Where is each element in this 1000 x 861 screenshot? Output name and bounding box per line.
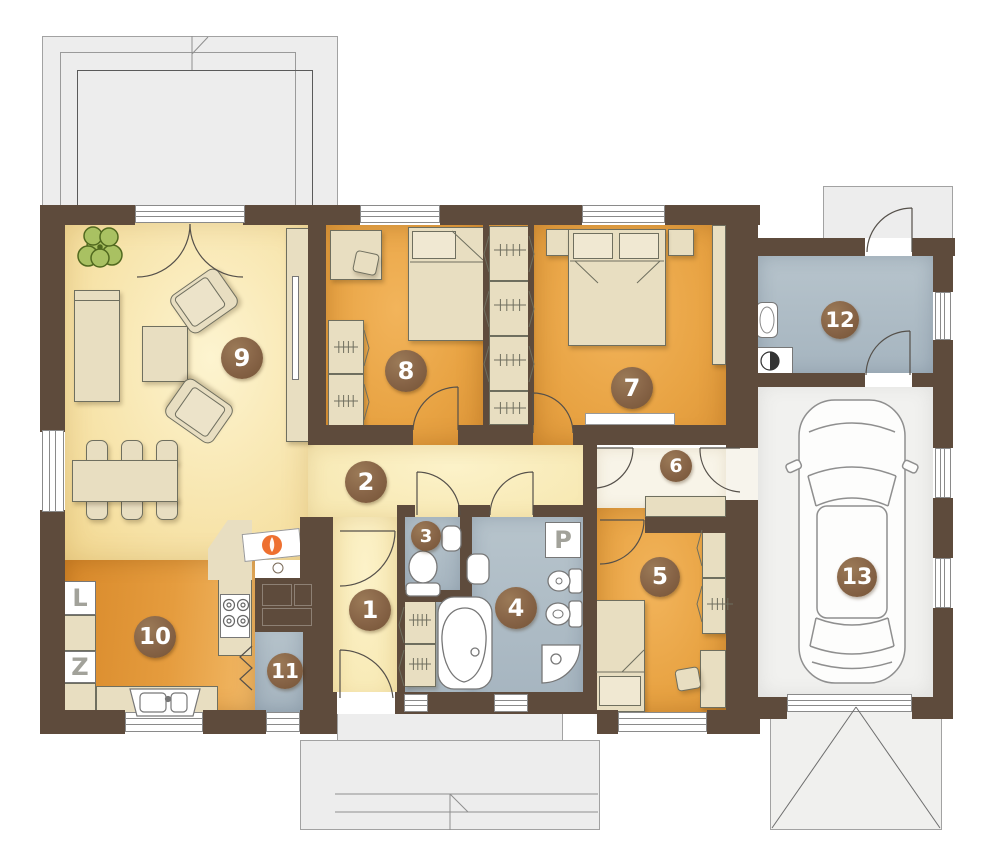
wall: [645, 517, 726, 533]
desk-chair: [674, 666, 701, 692]
wall: [397, 517, 405, 692]
wall: [458, 505, 490, 517]
stove-icon: [220, 594, 250, 638]
room-number-badge: 8: [385, 350, 427, 392]
floor-plan: 1 2 3 4 5 6 7 8 9 10 11 12 13 L Z P: [0, 0, 1000, 861]
washing-machine-label: P: [554, 526, 572, 554]
wall: [243, 205, 360, 225]
wall: [933, 608, 953, 719]
built-in-closet: [404, 601, 436, 644]
wall: [440, 205, 582, 225]
front-door-opening: [337, 692, 395, 714]
room-number-badge: 13: [837, 557, 877, 597]
kitchen-counter: [64, 615, 96, 651]
room-number-badge: 11: [267, 653, 303, 689]
room-number-badge: 3: [411, 521, 441, 551]
dresser: [585, 413, 675, 425]
utility-exterior-door-opening: [865, 238, 912, 256]
room-number-badge: 1: [349, 589, 391, 631]
hall-closet: [645, 496, 726, 517]
wardrobe: [702, 578, 726, 634]
wall: [933, 340, 953, 448]
pillow: [573, 233, 613, 259]
window-icon: [494, 694, 528, 712]
wall: [40, 205, 65, 432]
dining-table: [72, 460, 178, 502]
wardrobe: [328, 374, 364, 428]
wall: [40, 510, 65, 734]
wall: [400, 590, 460, 602]
wall: [912, 373, 933, 387]
kitchen-counter: [64, 683, 96, 711]
wall: [573, 425, 726, 445]
corridor-garage-opening: [726, 448, 758, 500]
wardrobe: [712, 225, 726, 365]
pillow: [412, 231, 456, 259]
wall: [740, 373, 865, 387]
flue-box: [294, 584, 312, 606]
desk-chair: [352, 250, 380, 277]
room-number-badge: 10: [134, 616, 176, 658]
wall: [460, 517, 472, 605]
wall: [300, 710, 337, 734]
wall: [740, 238, 865, 256]
wall: [528, 225, 534, 425]
window-icon: [360, 205, 440, 223]
desk: [700, 650, 726, 708]
wall: [203, 710, 266, 734]
window-icon: [935, 558, 951, 608]
wall: [583, 445, 597, 712]
wardrobe: [489, 336, 530, 391]
wall: [597, 710, 618, 734]
sideboard-divider: [75, 300, 119, 301]
wall: [933, 498, 953, 558]
fridge-label: L: [72, 584, 87, 612]
wall: [483, 225, 489, 425]
utility-garage-door-opening: [865, 373, 912, 387]
wardrobe: [489, 391, 530, 425]
wall: [308, 425, 413, 445]
utility-sink-icon: [756, 302, 778, 338]
garage-floor: [758, 383, 933, 697]
chimney-cap: [273, 563, 283, 573]
boiler-icon: [753, 347, 793, 375]
wall: [933, 238, 953, 292]
pillow: [599, 676, 641, 706]
wardrobe: [489, 226, 530, 281]
window-icon: [618, 712, 707, 732]
back-porch: [823, 186, 953, 240]
room-number-badge: 12: [821, 301, 859, 339]
wall: [458, 425, 533, 445]
tv-icon: [292, 276, 299, 380]
room-number-badge: 5: [640, 557, 680, 597]
nightstand: [668, 229, 694, 256]
wall: [308, 205, 326, 445]
window-icon: [935, 292, 951, 340]
room-number-badge: 6: [660, 450, 692, 482]
chimney: [300, 517, 333, 580]
window-icon: [125, 712, 203, 732]
terrace-door-window: [135, 205, 245, 223]
wall: [533, 505, 597, 517]
room-number-badge: 7: [611, 367, 653, 409]
flue-box: [262, 608, 312, 626]
window-icon: [42, 430, 64, 512]
wall: [726, 500, 758, 712]
terrace-step-edge: [77, 70, 313, 207]
coffee-table: [142, 326, 188, 382]
window-icon: [582, 205, 665, 223]
room-number-badge: 4: [495, 587, 537, 629]
wardrobe: [328, 320, 364, 374]
wall: [40, 710, 125, 734]
wardrobe: [489, 281, 530, 336]
window-icon: [404, 694, 428, 712]
built-in-closet: [404, 644, 436, 687]
window-icon: [266, 712, 300, 732]
garage-door: [787, 694, 912, 712]
room-number-badge: 9: [221, 337, 263, 379]
garage-apron: [770, 705, 942, 830]
flue-box: [262, 584, 292, 606]
entrance-porch-lower: [300, 740, 600, 830]
freezer-label: Z: [71, 653, 88, 681]
room-number-badge: 2: [345, 461, 387, 503]
window-icon: [935, 448, 951, 498]
pillow: [619, 233, 659, 259]
wall: [397, 505, 415, 517]
sideboard: [74, 290, 120, 402]
